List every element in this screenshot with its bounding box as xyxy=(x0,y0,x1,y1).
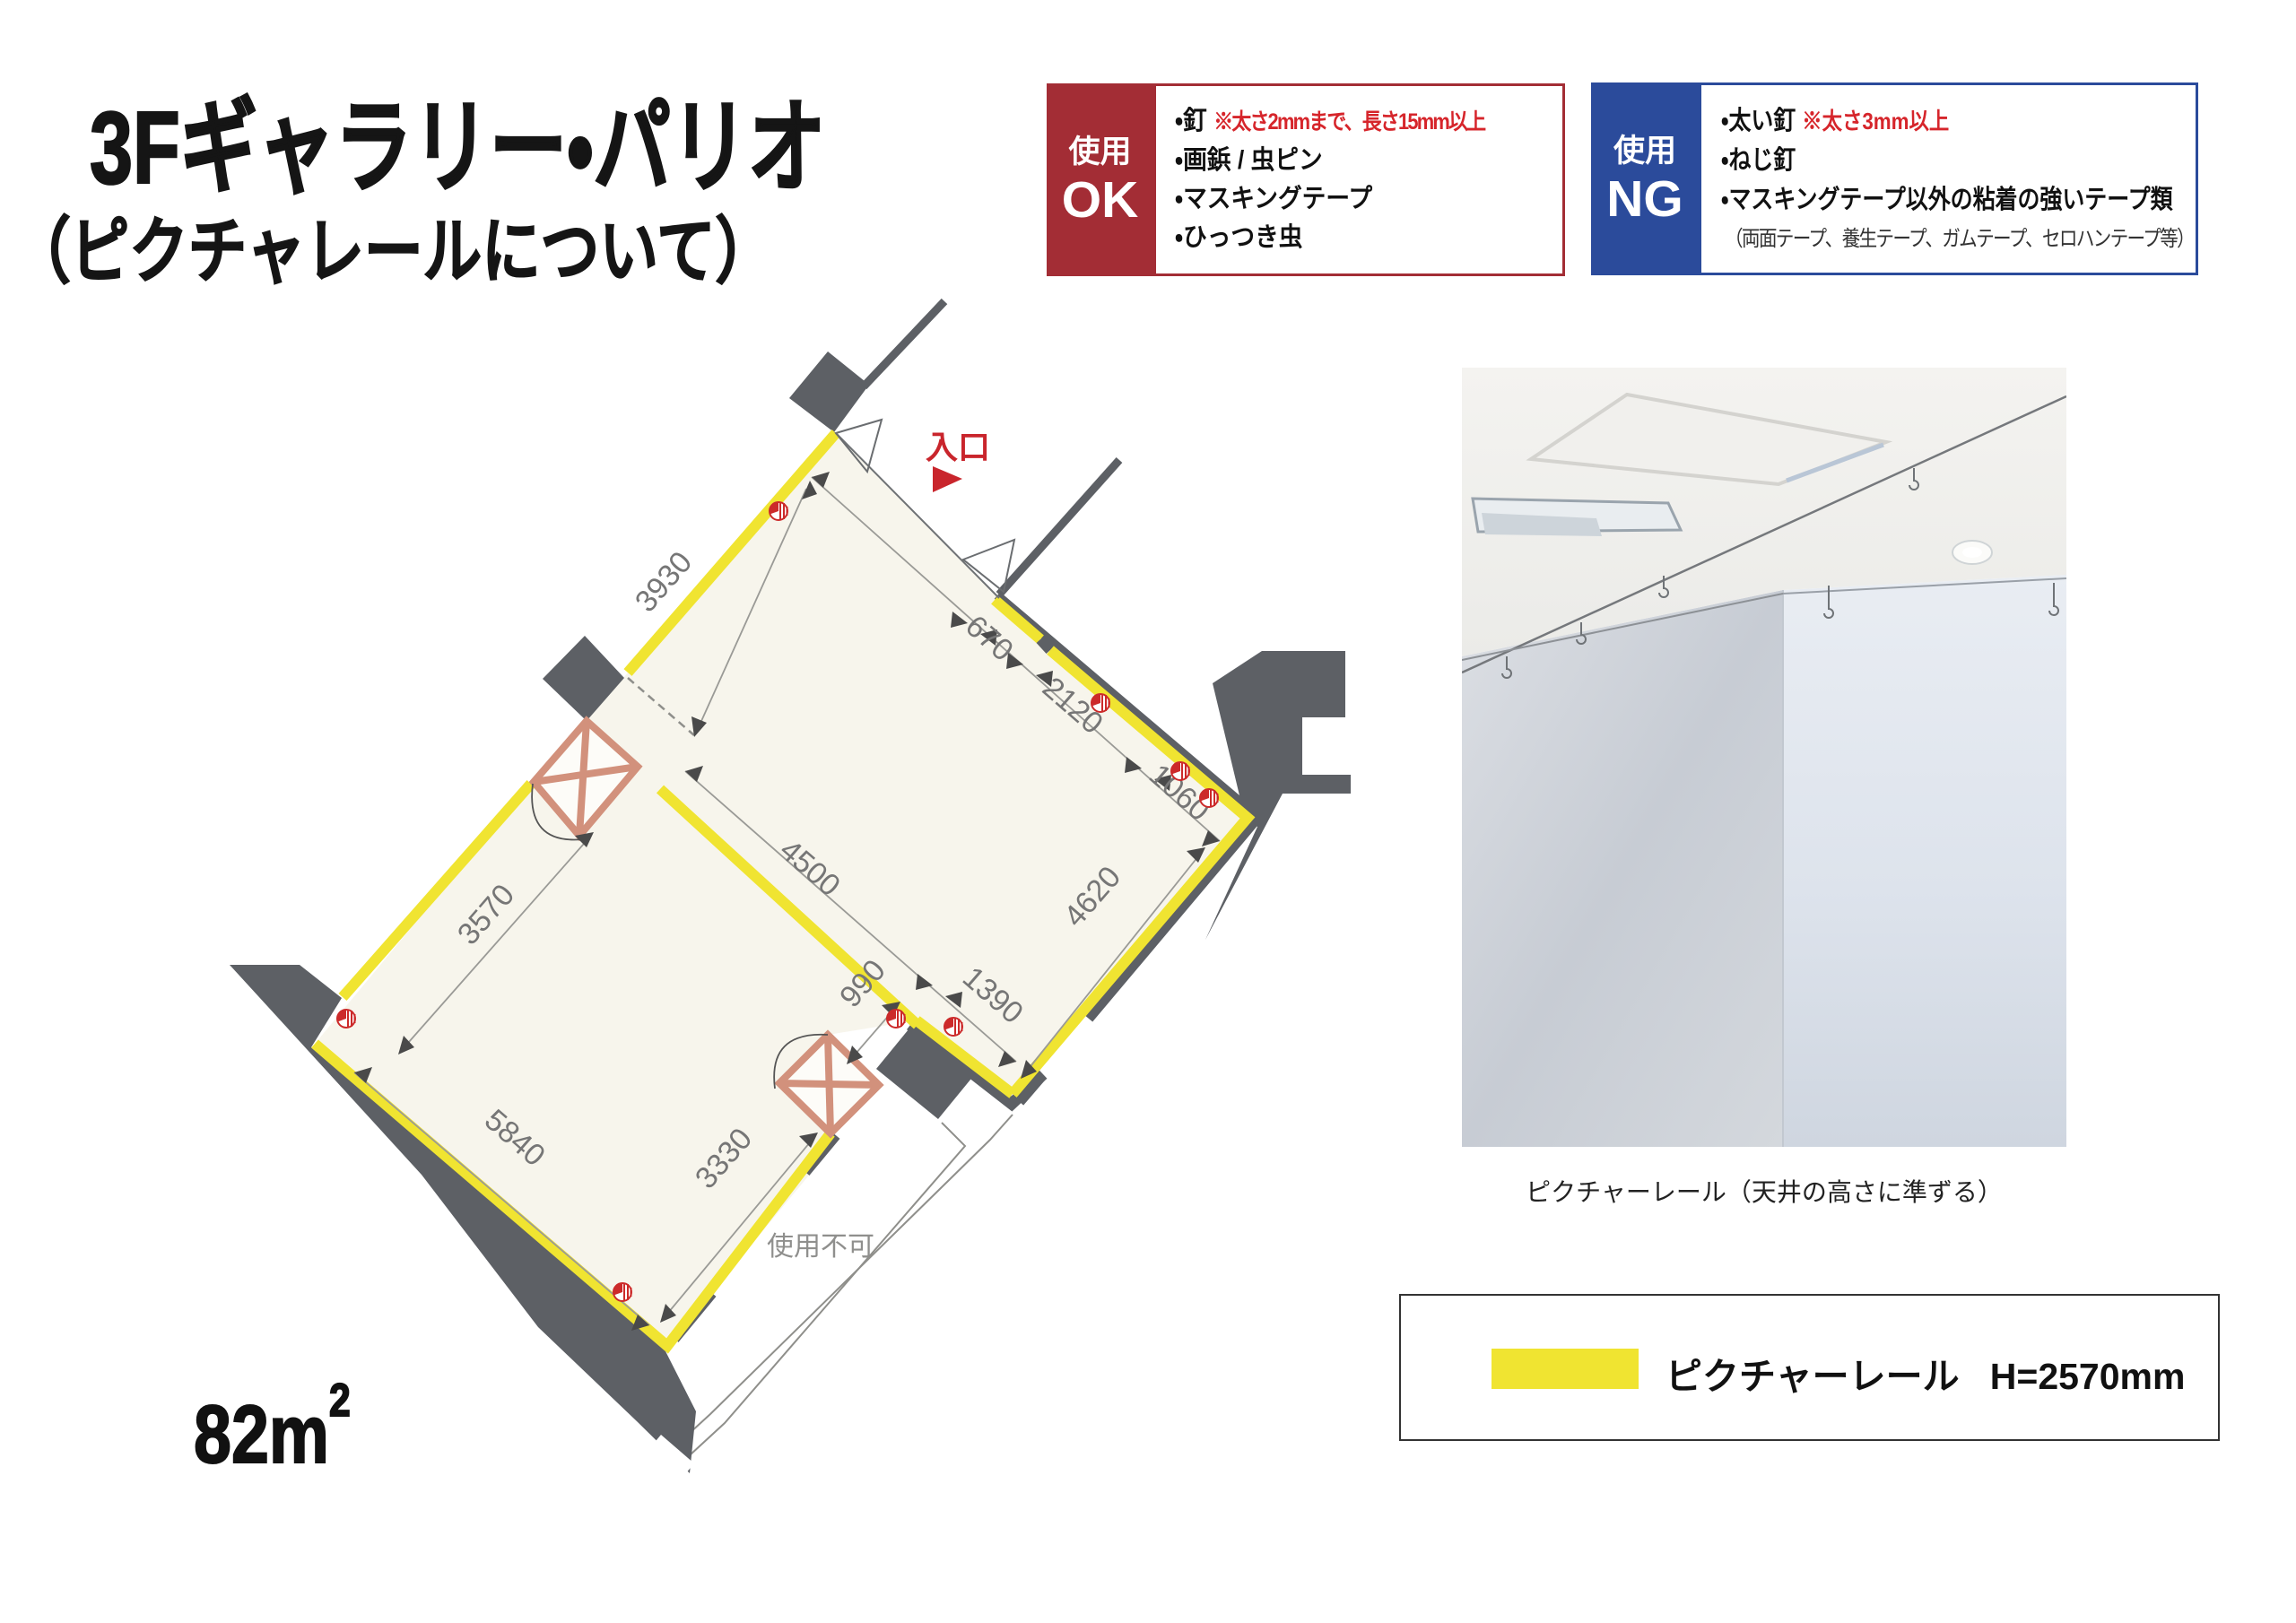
svg-text:使用不可: 使用不可 xyxy=(767,1232,874,1262)
svg-text:入口: 入口 xyxy=(926,429,990,465)
